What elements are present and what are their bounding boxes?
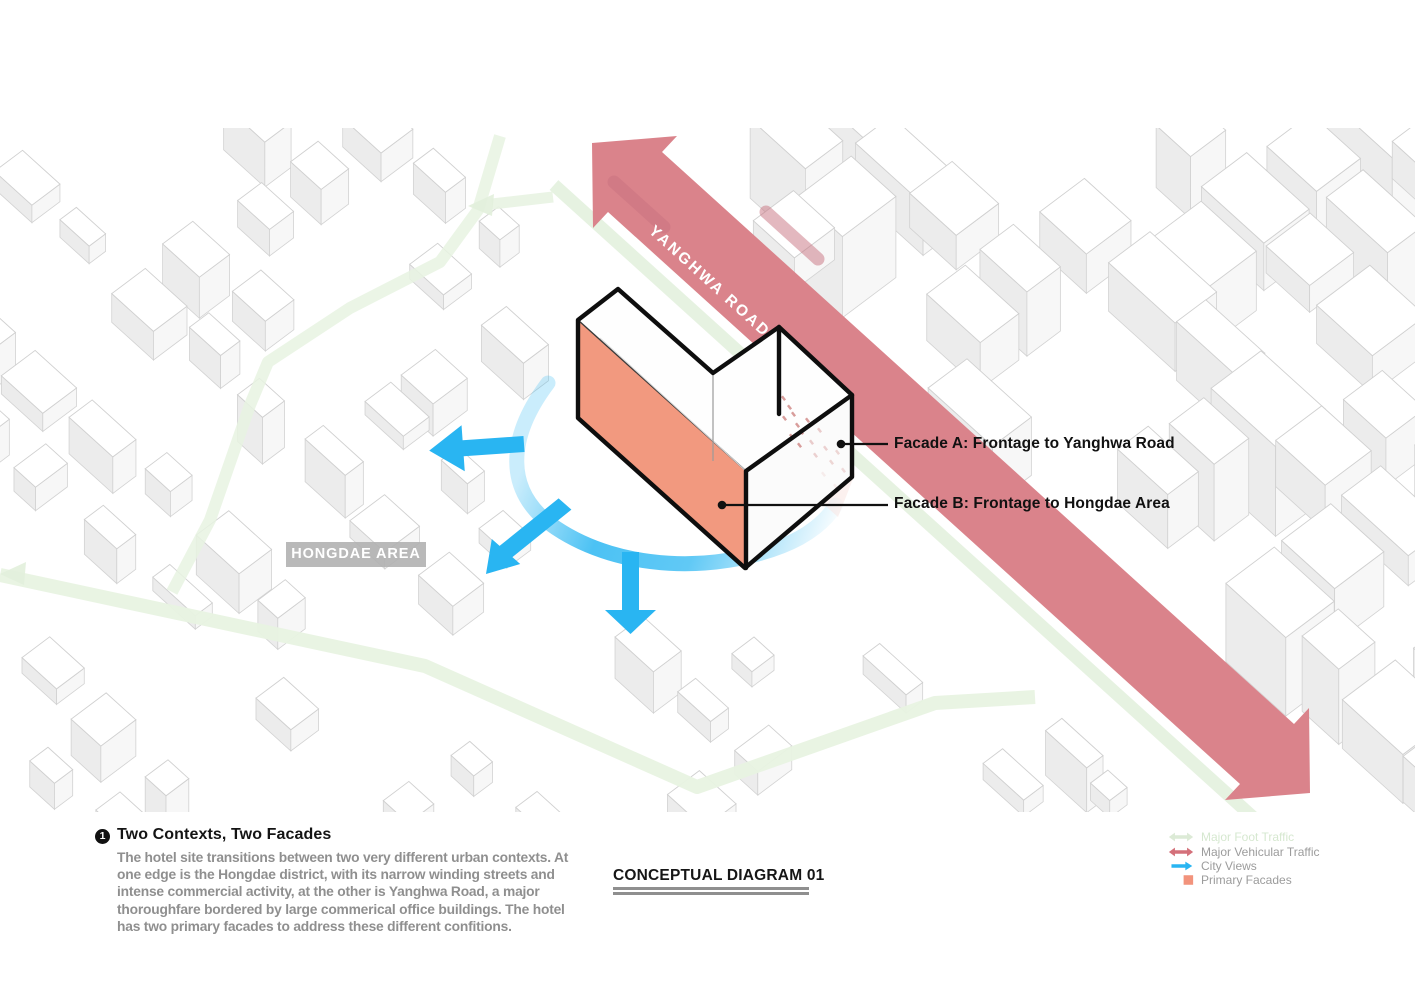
legend: Major Foot Traffic Major Vehicular Traff…: [1168, 830, 1320, 888]
facade-b-anchor-dot: [718, 501, 727, 510]
notes-block: 1 Two Contexts, Two Facades The hotel si…: [95, 826, 595, 935]
facade-a-anchor-dot: [837, 440, 846, 449]
hongdae-area-label: HONGDAE AREA: [286, 542, 426, 567]
legend-row-vehicular-traffic: Major Vehicular Traffic: [1168, 844, 1320, 858]
legend-label: Major Vehicular Traffic: [1201, 845, 1320, 859]
legend-label: Primary Facades: [1201, 873, 1292, 887]
legend-row-foot-traffic: Major Foot Traffic: [1168, 830, 1320, 844]
foot-traffic-double-arrow-icon: [1168, 831, 1194, 843]
city-views-arrow-icon: [1168, 860, 1194, 872]
conceptual-diagram-page: YANGHWA ROAD: [0, 0, 1415, 1000]
caption-title: CONCEPTUAL DIAGRAM 01: [613, 867, 824, 885]
legend-label: City Views: [1201, 859, 1257, 873]
legend-row-city-views: City Views: [1168, 859, 1320, 873]
facade-a-label: Facade A: Frontage to Yanghwa Road: [894, 435, 1175, 453]
legend-label: Major Foot Traffic: [1201, 830, 1294, 844]
note-title: Two Contexts, Two Facades: [117, 826, 595, 844]
vehicular-traffic-double-arrow-icon: [1168, 846, 1194, 858]
diagram-caption: CONCEPTUAL DIAGRAM 01: [613, 867, 824, 895]
facade-b-label: Facade B: Frontage to Hongdae Area: [894, 495, 1170, 513]
primary-facades-swatch-icon: [1168, 874, 1194, 886]
caption-underline-bottom: [613, 892, 809, 895]
note-body: The hotel site transitions between two v…: [117, 849, 569, 935]
note-number-badge: 1: [95, 829, 110, 844]
legend-row-primary-facades: Primary Facades: [1168, 873, 1320, 887]
caption-underline-top: [613, 887, 809, 890]
